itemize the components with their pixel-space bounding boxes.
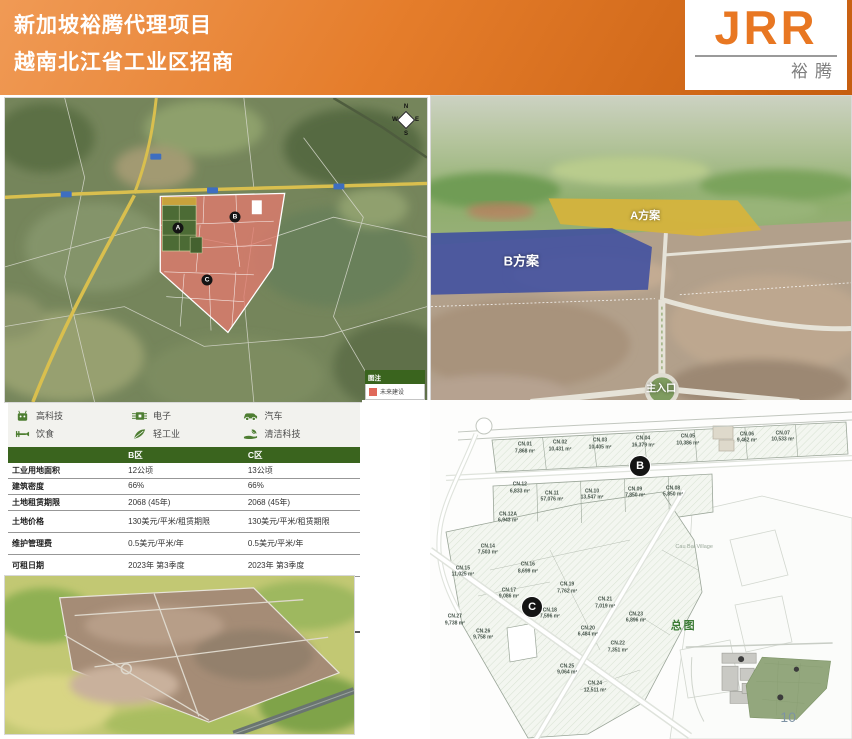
lot-label-CN.02: CN.0210,431 m² — [549, 440, 572, 453]
industry-label: 电子 — [153, 409, 171, 422]
lot-id: CN.12 — [510, 482, 530, 489]
lot-area: 7,762 m² — [557, 588, 577, 595]
spec-table-body: 工业用地面积12公顷13公顷建筑密度66%66%土地租赁期限2068 (45年)… — [8, 463, 360, 577]
industry-item: 汽车 — [243, 409, 354, 422]
lot-id: CN.01 — [515, 442, 535, 449]
industry-item: 轻工业 — [131, 427, 242, 440]
clean-tech-icon — [243, 428, 259, 440]
industry-item: 电子 — [131, 409, 242, 422]
plan-zone-marker-C: C — [521, 596, 543, 618]
lot-area: 7,596 m² — [540, 614, 560, 621]
lot-area: 13,547 m² — [581, 495, 604, 502]
overview-map: 总图 — [671, 617, 847, 736]
lot-area: 9,738 m² — [445, 620, 465, 627]
spec-row-label: 土地价格 — [8, 511, 124, 533]
lot-area: 16,379 m² — [632, 442, 655, 449]
lot-area: 12,511 m² — [584, 687, 607, 694]
sat-zone-marker-B: B — [229, 212, 240, 223]
lot-label-CN.07: CN.0710,533 m² — [771, 430, 794, 443]
lot-area: 7,019 m² — [595, 603, 615, 610]
lot-label-CN.21: CN.217,019 m² — [595, 597, 615, 610]
logo-chinese-name: 裕腾 — [791, 57, 839, 82]
spec-row-value: 2068 (45年) — [244, 495, 360, 511]
plan-b-label: B方案 — [504, 250, 539, 269]
spec-row-label: 土地租赁期限 — [8, 495, 124, 511]
lot-label-CN.05: CN.0510,386 m² — [676, 434, 699, 447]
spec-row-value: 66% — [124, 479, 244, 495]
overview-title: 总图 — [671, 617, 847, 633]
lot-area: 6,943 m² — [498, 518, 518, 525]
spec-row: 工业用地面积12公顷13公顷 — [8, 463, 360, 479]
spec-row-value: 0.5美元/平米/年 — [244, 533, 360, 555]
spec-row: 建筑密度66%66% — [8, 479, 360, 495]
sat-zone-marker-A: A — [173, 223, 184, 234]
lot-label-CN.23: CN.236,896 m² — [626, 611, 646, 624]
industry-item: 饮食 — [14, 427, 131, 440]
spec-row: 维护管理费0.5美元/平米/年0.5美元/平米/年 — [8, 533, 360, 555]
main-entrance-label: 主入口 — [646, 379, 676, 394]
lot-id: CN.09 — [625, 486, 645, 493]
industry-item: 高科技 — [14, 409, 131, 422]
plan-a-label: A方案 — [630, 207, 660, 223]
aerial-photo-art — [431, 96, 851, 402]
lot-area: 7,503 m² — [478, 550, 498, 557]
legend-title: 图注 — [365, 370, 425, 384]
lot-id: CN.06 — [737, 431, 757, 438]
spec-row-value: 2023年 第3季度 — [244, 555, 360, 577]
slide: 新加坡裕腾代理项目 越南北江省工业区招商 JRR 裕腾 — [0, 0, 852, 739]
robot-icon — [14, 410, 30, 422]
lot-label-CN.06: CN.069,462 m² — [737, 431, 757, 444]
compass-s: S — [404, 131, 408, 137]
lot-label-CN.01: CN.017,868 m² — [515, 442, 535, 455]
spec-row-value: 12公顷 — [124, 463, 244, 479]
spec-row-value: 2023年 第3季度 — [124, 555, 244, 577]
lot-label-CN.24: CN.2412,511 m² — [584, 681, 607, 694]
lot-label-CN.03: CN.0310,405 m² — [589, 438, 612, 451]
map-legend: 图注 未来建设 — [365, 370, 425, 400]
fork-icon — [14, 428, 30, 440]
spec-row: 可租日期2023年 第3季度2023年 第3季度 — [8, 555, 360, 577]
spec-row-label: 工业用地面积 — [8, 463, 124, 479]
legend-swatch — [369, 388, 377, 396]
lot-label-CN.16: CN.168,699 m² — [518, 562, 538, 575]
lot-area: 10,405 m² — [589, 444, 612, 451]
lot-area: 6,896 m² — [626, 618, 646, 625]
lot-label-CN.22: CN.227,351 m² — [608, 641, 628, 654]
lot-area: 9,086 m² — [499, 594, 519, 601]
lot-label-CN.10: CN.1013,547 m² — [581, 488, 604, 501]
site-aerial-art — [5, 576, 354, 734]
lot-area: 5,850 m² — [663, 492, 683, 499]
lot-id: CN.22 — [608, 641, 628, 648]
spec-header-zone-c: C区 — [244, 447, 360, 463]
page-subtitle: 越南北江省工业区招商 — [14, 45, 234, 82]
aerial-photo-plans: A方案 B方案 主入口 — [430, 95, 852, 403]
lot-id: CN.26 — [473, 628, 493, 635]
site-aerial-photo — [4, 575, 355, 735]
plan-zone-marker-B: B — [629, 455, 651, 477]
spec-row-value: 130美元/平米/租赁期限 — [244, 511, 360, 533]
spec-row-label: 维护管理费 — [8, 533, 124, 555]
spec-row-value: 13公顷 — [244, 463, 360, 479]
lot-id: CN.17 — [499, 587, 519, 594]
header-banner: 新加坡裕腾代理项目 越南北江省工业区招商 JRR 裕腾 — [0, 0, 852, 95]
lot-area: 7,351 m² — [608, 647, 628, 654]
overview-minimap — [671, 633, 847, 726]
industry-label: 饮食 — [36, 427, 54, 440]
lot-label-CN.09: CN.097,850 m² — [625, 486, 645, 499]
car-icon — [243, 410, 259, 422]
lot-label-CN.12: CN.126,833 m² — [510, 482, 530, 495]
lot-area: 9,064 m² — [557, 670, 577, 677]
lot-id: CN.27 — [445, 614, 465, 621]
lot-label-CN.25: CN.259,064 m² — [557, 663, 577, 676]
lot-area: 10,533 m² — [771, 437, 794, 444]
industry-label: 轻工业 — [153, 427, 180, 440]
spec-row-value: 130美元/平米/租赁期限 — [124, 511, 244, 533]
satellite-map: ABC N E S W 图注 未来建设 — [4, 97, 428, 403]
compass-w: W — [392, 117, 398, 123]
lot-id: CN.14 — [478, 543, 498, 550]
spec-header-empty — [8, 447, 124, 463]
lot-label-CN.04: CN.0416,379 m² — [632, 436, 655, 449]
industry-label: 高科技 — [36, 409, 63, 422]
lot-label-CN.19: CN.197,762 m² — [557, 582, 577, 595]
lot-area: 57,076 m² — [541, 497, 564, 504]
lot-id: CN.21 — [595, 597, 615, 604]
lot-area: 6,833 m² — [510, 488, 530, 495]
spec-row-label: 建筑密度 — [8, 479, 124, 495]
lot-area: 8,699 m² — [518, 568, 538, 575]
lot-label-CN.15: CN.1511,025 m² — [452, 565, 475, 578]
lot-label-CN.20: CN.206,484 m² — [578, 625, 598, 638]
village-label: Cau Bai Village — [675, 544, 713, 550]
lot-id: CN.12A — [498, 511, 518, 518]
compass-n: N — [404, 104, 408, 110]
feather-icon — [131, 428, 147, 440]
siteplan: CN.017,868 m²CN.0210,431 m²CN.0310,405 m… — [362, 400, 852, 739]
page-number: 10 — [780, 709, 796, 725]
header-titles: 新加坡裕腾代理项目 越南北江省工业区招商 — [14, 8, 234, 82]
lot-id: CN.16 — [518, 562, 538, 569]
industry-grid: 高科技电子汽车饮食轻工业清洁科技 — [8, 403, 360, 447]
company-logo: JRR 裕腾 — [685, 0, 847, 90]
lot-id: CN.19 — [557, 582, 577, 589]
legend-item: 未来建设 — [365, 384, 425, 400]
lot-area: 7,868 m² — [515, 448, 535, 455]
lot-label-CN.27: CN.279,738 m² — [445, 614, 465, 627]
spec-header-zone-b: B区 — [124, 447, 244, 463]
lot-area: 10,431 m² — [549, 446, 572, 453]
spec-row: 土地价格130美元/平米/租赁期限130美元/平米/租赁期限 — [8, 511, 360, 533]
lot-label-CN.14: CN.147,503 m² — [478, 543, 498, 556]
lot-id: CN.23 — [626, 611, 646, 618]
lot-label-CN.17: CN.179,086 m² — [499, 587, 519, 600]
lot-label-CN.12A: CN.12A6,943 m² — [498, 511, 518, 524]
lot-label-CN.08: CN.085,850 m² — [663, 485, 683, 498]
lot-id: CN.20 — [578, 625, 598, 632]
satellite-map-art — [5, 98, 427, 402]
lot-area: 7,850 m² — [625, 493, 645, 500]
industry-label: 汽车 — [265, 409, 283, 422]
compass-rose-icon: N E S W — [392, 103, 420, 137]
lot-label-CN.11: CN.1157,076 m² — [541, 490, 564, 503]
lot-area: 9,758 m² — [473, 635, 493, 642]
spec-row-label: 可租日期 — [8, 555, 124, 577]
lot-label-CN.26: CN.269,758 m² — [473, 628, 493, 641]
spec-row-value: 0.5美元/平米/年 — [124, 533, 244, 555]
spec-row-value: 2068 (45年) — [124, 495, 244, 511]
lot-area: 6,484 m² — [578, 632, 598, 639]
compass-needle — [397, 111, 415, 129]
lot-id: CN.25 — [557, 663, 577, 670]
compass-e: E — [415, 117, 419, 123]
spec-table-header-row: B区 C区 — [8, 447, 360, 463]
lot-id: CN.08 — [663, 485, 683, 492]
spec-row: 土地租赁期限2068 (45年)2068 (45年) — [8, 495, 360, 511]
circuit-board-icon — [131, 410, 147, 422]
spec-row-value: 66% — [244, 479, 360, 495]
sat-zone-marker-C: C — [202, 274, 213, 285]
lot-area: 11,025 m² — [452, 572, 475, 579]
page-title: 新加坡裕腾代理项目 — [14, 8, 234, 45]
legend-label: 未来建设 — [380, 387, 404, 396]
jrr-logo-text: JRR — [714, 2, 817, 54]
industry-label: 清洁科技 — [265, 427, 301, 440]
lot-area: 10,386 m² — [676, 440, 699, 447]
lot-area: 9,462 m² — [737, 438, 757, 445]
industry-item: 清洁科技 — [243, 427, 354, 440]
